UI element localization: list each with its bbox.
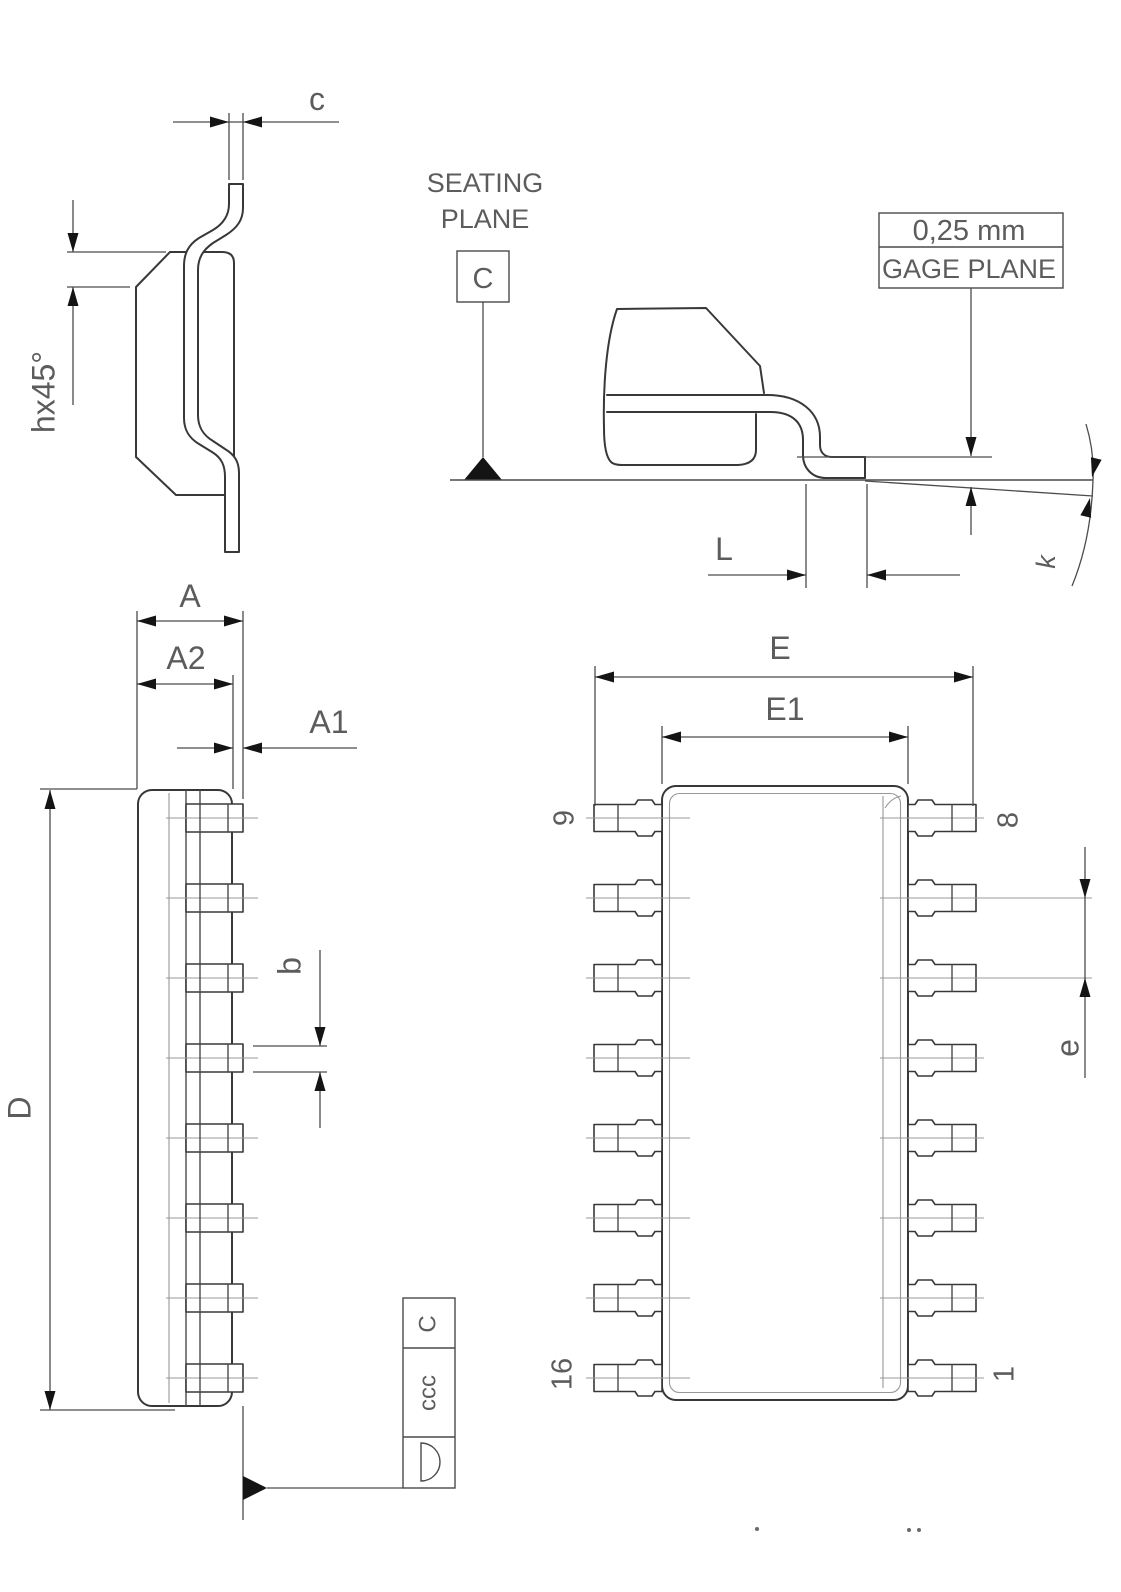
artifact-dots xyxy=(755,1527,921,1532)
dimension-b: b xyxy=(253,950,327,1128)
label-c: c xyxy=(309,81,325,117)
label-chamfer: hx45° xyxy=(25,351,61,433)
pin-number-8: 8 xyxy=(993,812,1025,828)
foot-angle-line xyxy=(865,481,1093,496)
datum-c-label: C xyxy=(473,263,494,295)
datum-triangle-icon xyxy=(243,1476,267,1500)
dimension-E1: E1 xyxy=(662,691,908,784)
pin-number-9: 9 xyxy=(549,810,581,826)
label-e: e xyxy=(1049,1039,1085,1057)
label-A2: A2 xyxy=(166,640,205,676)
label-gage-value: 0,25 mm xyxy=(913,215,1026,247)
label-E1: E1 xyxy=(765,691,804,727)
dimension-chamfer: hx45° xyxy=(25,200,166,433)
gull-wing-lead-inner xyxy=(607,412,865,478)
package-body-top xyxy=(662,786,908,1400)
tolerance-frame: C ccc xyxy=(403,1298,455,1488)
gull-wing-lead xyxy=(607,395,865,457)
dimension-k: k xyxy=(1031,424,1102,586)
label-b: b xyxy=(271,957,307,975)
package-body-partial xyxy=(604,308,764,465)
dimension-A2: A2 xyxy=(137,640,233,789)
dimension-L: L xyxy=(708,484,960,588)
label-plane: PLANE xyxy=(441,204,530,234)
dimension-A1: A1 xyxy=(177,704,357,754)
tolerance-frame-value: ccc xyxy=(414,1375,441,1411)
seating-datum-connector xyxy=(243,1406,403,1520)
pin-number-16: 16 xyxy=(547,1358,579,1390)
label-D: D xyxy=(1,1096,37,1119)
datum-triangle-icon xyxy=(464,457,502,480)
lead-cross-section-view: c hx45° xyxy=(25,81,339,552)
pin-number-1: 1 xyxy=(989,1366,1021,1382)
label-seating: SEATING xyxy=(427,168,544,198)
label-E: E xyxy=(769,630,790,666)
gage-plane-box: 0,25 mm GAGE PLANE xyxy=(879,213,1063,535)
drawing-canvas: c hx45° SEATING PLANE C xyxy=(0,0,1121,1592)
label-gage-plane: GAGE PLANE xyxy=(882,254,1056,284)
label-L: L xyxy=(715,531,733,567)
package-body-side xyxy=(138,790,232,1406)
label-A: A xyxy=(179,578,201,614)
label-k: k xyxy=(1031,554,1061,569)
side-elevation-view: A A2 A1 D xyxy=(1,578,455,1520)
package-outline-drawing: c hx45° SEATING PLANE C xyxy=(0,0,1121,1592)
top-view: E E1 e 9 8 16 1 xyxy=(547,630,1092,1400)
profile-of-surface-icon xyxy=(421,1443,440,1481)
dimension-e: e xyxy=(1049,847,1090,1078)
label-A1: A1 xyxy=(309,704,348,740)
dimension-c: c xyxy=(173,81,339,180)
tolerance-frame-datum: C xyxy=(414,1315,441,1332)
lead-foot-view: 0,25 mm GAGE PLANE L k xyxy=(604,213,1102,588)
